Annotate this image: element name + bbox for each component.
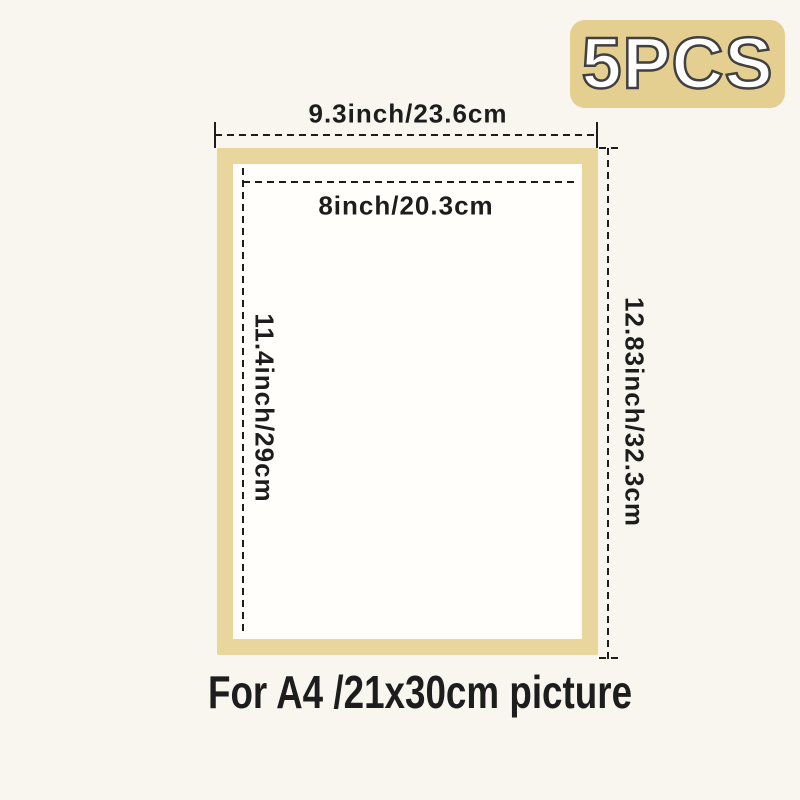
outer-width-dim-line [215,134,597,136]
inner-width-dim-line [243,181,578,183]
outer-width-tick-right [596,122,598,148]
outer-height-cap-bottom [599,657,623,659]
outer-height-label: 12.83inch/32.3cm [619,297,650,527]
inner-height-dim-line [242,168,244,633]
inner-height-label: 11.4inch/29cm [249,313,280,502]
outer-width-label: 9.3inch/23.6cm [309,99,508,130]
inner-width-label: 8inch/20.3cm [318,191,493,222]
product-diagram: 5PCS 9.3inch/23.6cm 8inch/20.3cm 11.4inc… [0,0,800,800]
outer-width-tick-left [214,122,216,148]
outer-height-cap-top [599,147,623,149]
quantity-badge-label: 5PCS [581,23,773,105]
quantity-badge: 5PCS [570,20,785,108]
caption: For A4 /21x30cm picture [208,665,632,719]
outer-height-dim-line [607,148,609,659]
